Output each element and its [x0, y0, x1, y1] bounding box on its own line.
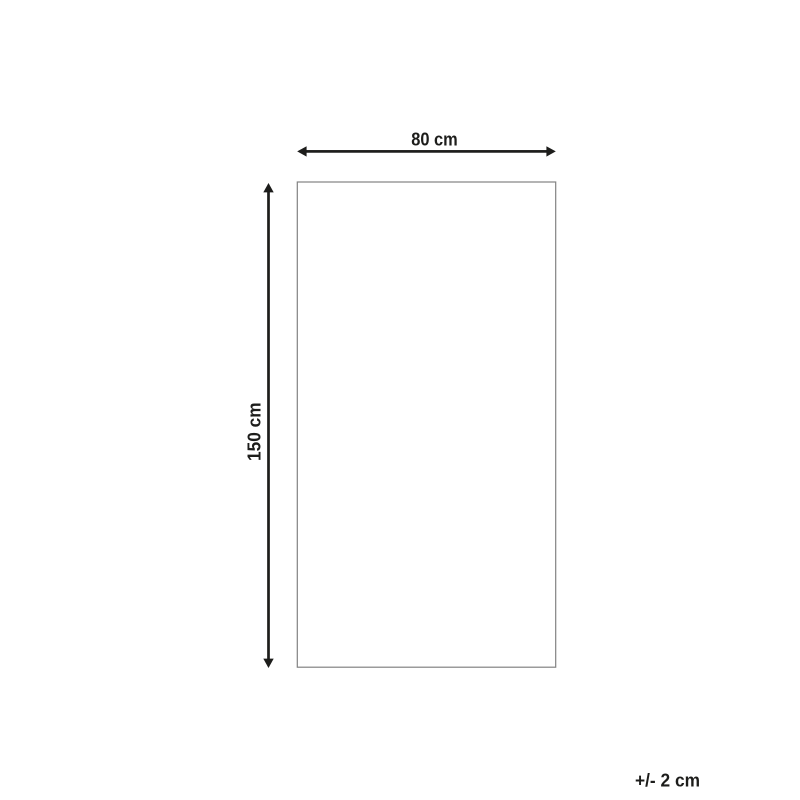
svg-text:+/- 2 cm: +/- 2 cm	[635, 770, 700, 790]
svg-text:150 cm: 150 cm	[245, 402, 265, 461]
svg-text:80 cm: 80 cm	[411, 129, 458, 149]
